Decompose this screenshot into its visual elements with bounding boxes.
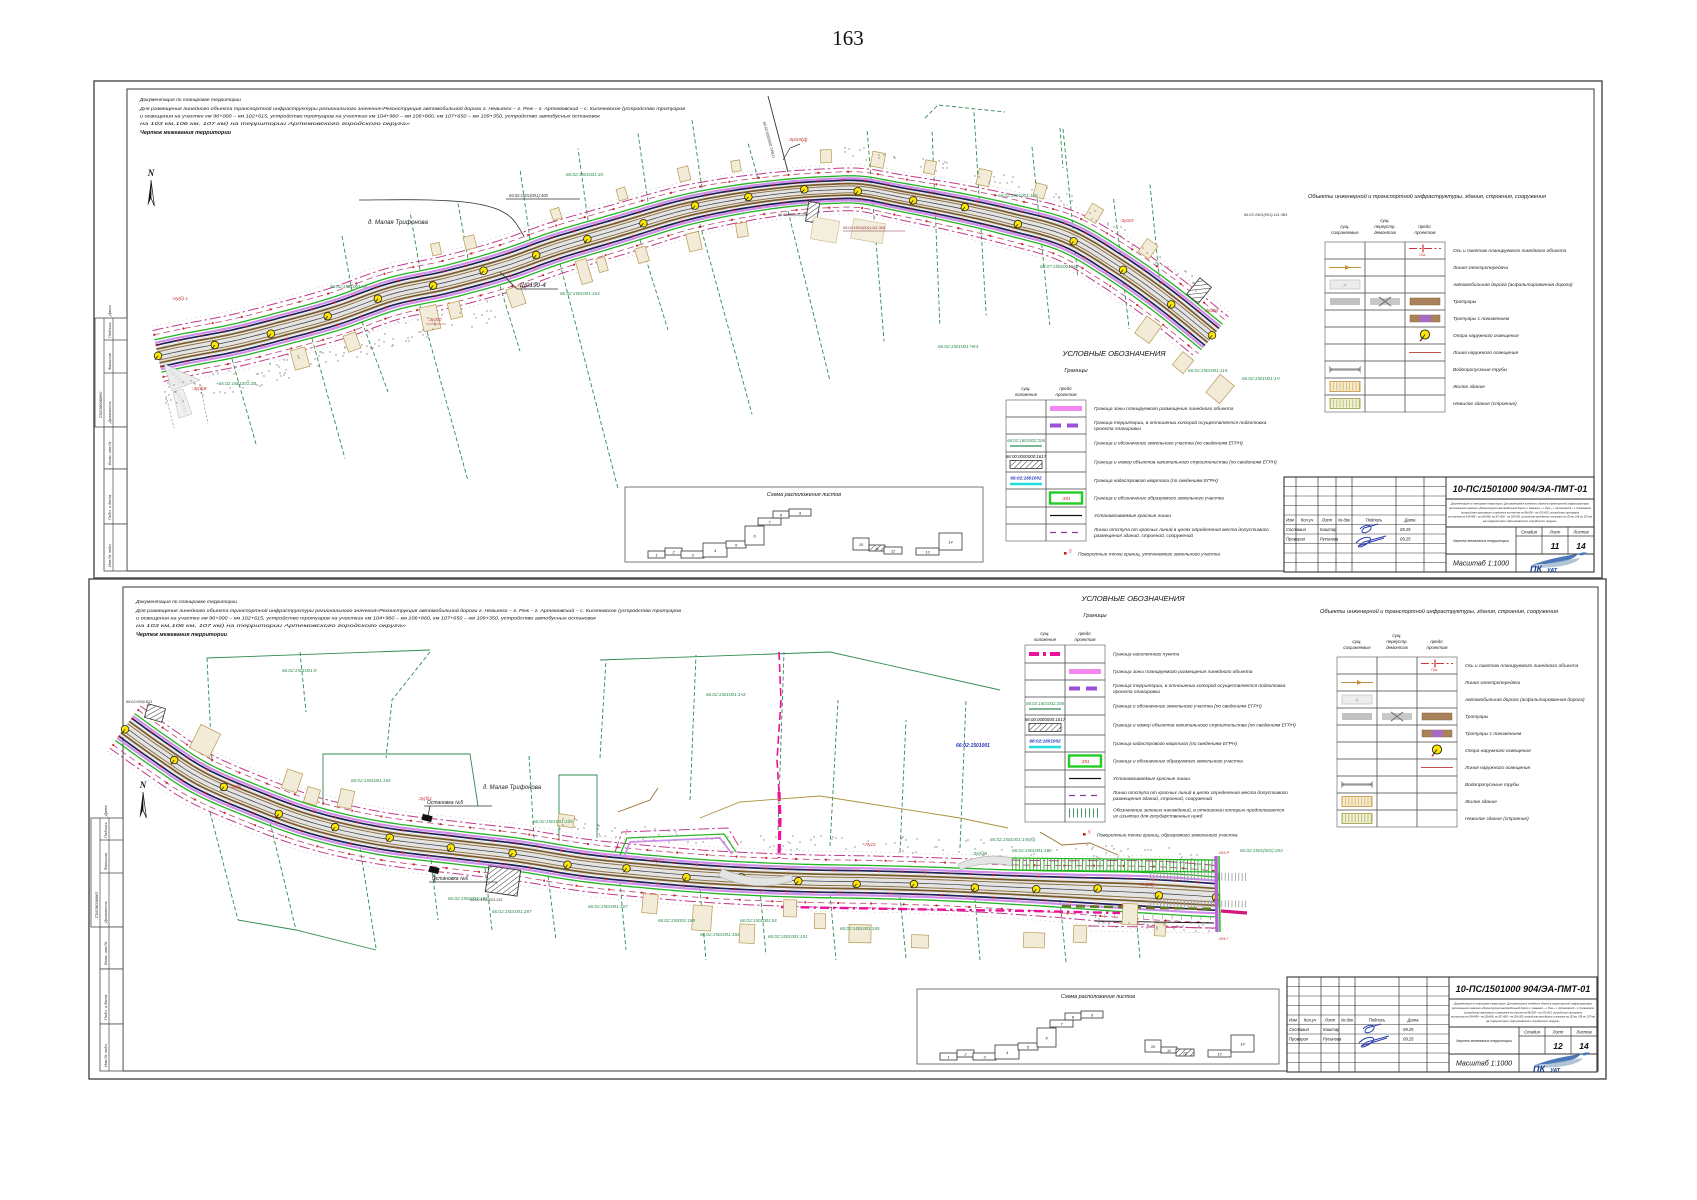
- svg-text:66:02:1501001:1б5: 66:02:1501001:1б5: [533, 819, 573, 824]
- svg-text:Подпись: Подпись: [103, 822, 108, 838]
- svg-text::391: :391: [1081, 759, 1090, 764]
- svg-text:Дата: Дата: [103, 805, 108, 817]
- svg-text:66:02:1501001:9: 66:02:1501001:9: [282, 668, 317, 673]
- svg-text:Линии отступа от красных линий: Линии отступа от красных линий в целях о…: [1112, 789, 1288, 796]
- svg-text::Пу13: :Пу13: [864, 842, 876, 847]
- svg-text:Листов: Листов: [1572, 530, 1589, 535]
- svg-text:12: 12: [1553, 1041, 1563, 1051]
- svg-text:Лист: Лист: [1552, 1030, 1564, 1035]
- svg-text:сущ.: сущ.: [1021, 386, 1030, 391]
- svg-text:их изъятие для государственных: их изъятие для государственных нужд: [1113, 814, 1203, 820]
- svg-text:Тротуары с понижением: Тротуары с понижением: [1465, 731, 1522, 737]
- svg-text:Объекты инженерной и транспорт: Объекты инженерной и транспортной инфрас…: [1320, 608, 1558, 615]
- svg-text::Зу019(Д): :Зу019(Д): [788, 137, 808, 142]
- svg-text:Границы: Границы: [1064, 368, 1088, 374]
- svg-text:Согласовано:: Согласовано:: [94, 891, 99, 918]
- svg-text:11: 11: [1551, 541, 1560, 551]
- svg-text:на 103 км,106 км, 107 км) на т: на 103 км,106 км, 107 км) на территории …: [136, 623, 407, 628]
- svg-text:сущ.: сущ.: [1352, 639, 1361, 644]
- svg-text:Инв.№ подл.: Инв.№ подл.: [103, 1043, 108, 1067]
- svg-text:Линия электропередачи: Линия электропередачи: [1464, 680, 1520, 686]
- svg-text:66:02:0000:В11: 66:02:0000:В11: [126, 700, 153, 704]
- svg-text:положение: положение: [1034, 637, 1057, 642]
- svg-text:Ось и пикетаж планируемого лин: Ось и пикетаж планируемого линейного объ…: [1465, 662, 1579, 669]
- svg-text::Пи(2В): :Пи(2В): [1139, 882, 1155, 887]
- svg-text:предл.: предл.: [1430, 639, 1443, 644]
- svg-text:Остановка №6: Остановка №6: [432, 876, 468, 882]
- svg-text:Тротуары: Тротуары: [1453, 299, 1477, 305]
- svg-text:проекта планировки: проекта планировки: [1094, 427, 1141, 432]
- svg-text:09.25: 09.25: [1403, 1037, 1414, 1042]
- svg-text:Граница и номер объектов капит: Граница и номер объектов капитального ст…: [1113, 723, 1296, 729]
- svg-text:66:02:1501001:151: 66:02:1501001:151: [768, 934, 808, 939]
- svg-text:Нежилое здание (строение): Нежилое здание (строение): [1465, 816, 1529, 822]
- svg-text:66:02:0000001290: 66:02:0000001290: [778, 213, 808, 217]
- svg-text:66:02:1501001:ч3: 66:02:1501001:ч3: [330, 284, 367, 289]
- svg-text:Граница и номер объектов капит: Граница и номер объектов капитального ст…: [1094, 460, 1277, 466]
- svg-text:размещения зданий, строений, с: размещения зданий, строений, сооружений: [1093, 532, 1193, 539]
- svg-text:Фамилия: Фамилия: [107, 352, 112, 370]
- svg-text:Пик: Пик: [1419, 253, 1426, 257]
- svg-text::293.Р: :293.Р: [1218, 851, 1229, 855]
- svg-text:163: 163: [832, 26, 864, 50]
- svg-text:регионального значения «Реконс: регионального значения «Реконструкция ав…: [1451, 1006, 1594, 1010]
- svg-text:сущ.: сущ.: [1340, 224, 1349, 229]
- svg-text:Остановка №5: Остановка №5: [427, 800, 463, 806]
- svg-text::Зу02В: :Зу02В: [1204, 308, 1218, 313]
- svg-text:66:02:1501001:119: 66:02:1501001:119: [1188, 368, 1228, 373]
- svg-text:на участках км 104+980 – км 10: на участках км 104+980 – км 106+860, км …: [1451, 1015, 1595, 1019]
- svg-text:Линия наружного освещения: Линия наружного освещения: [1452, 350, 1519, 356]
- svg-text:Документация по планировке тер: Документация по планировке территории. Д…: [1453, 1002, 1592, 1006]
- svg-text:Для размещения линейного объек: Для размещения линейного объекта транспо…: [135, 607, 682, 613]
- svg-text:Документация по планировке тер: Документация по планировке территории: [135, 599, 237, 605]
- svg-text:Поворотные точки границ, уточн: Поворотные точки границ, уточняемого зем…: [1078, 552, 1220, 558]
- svg-text:Составил: Составил: [1289, 1027, 1310, 1032]
- svg-text:Подп. и дата: Подп. и дата: [103, 994, 108, 1020]
- svg-text:66:02:1501(001):400: 66:02:1501(001):400: [509, 193, 549, 198]
- svg-text:Документация по планировке тер: Документация по планировке территории: [139, 97, 241, 103]
- svg-text:66:02:1501001:184: 66:02:1501001:184: [448, 896, 488, 901]
- svg-text:Подпись: Подпись: [1369, 1018, 1386, 1023]
- svg-text:Схема расположения листов: Схема расположения листов: [767, 492, 841, 498]
- svg-text:66:02:1601002: 66:02:1601002: [1010, 476, 1042, 481]
- svg-text:Лист: Лист: [1321, 518, 1333, 523]
- svg-text:(устройство тротуаров и освеще: (устройство тротуаров и освещения на уча…: [1464, 1010, 1583, 1014]
- svg-text:Изм: Изм: [1286, 518, 1294, 523]
- svg-text:регионального значения «Реконс: регионального значения «Реконструкция ав…: [1448, 506, 1591, 510]
- svg-text:Граница и обозначение земельно: Граница и обозначение земельного участка…: [1094, 441, 1243, 447]
- svg-text:Автомобильная дорога (асфальти: Автомобильная дорога (асфальтированная д…: [1452, 282, 1573, 288]
- svg-text:Устанавливаемые красные линии: Устанавливаемые красные линии: [1094, 513, 1171, 519]
- svg-text:66:02:1501001:1Ч: 66:02:1501001:1Ч: [1242, 376, 1280, 381]
- svg-text::Зу(б)В: :Зу(б)В: [972, 851, 987, 856]
- svg-text:сущ.: сущ.: [1380, 218, 1389, 223]
- svg-text:66:02:1601002:206: 66:02:1601002:206: [1026, 701, 1064, 706]
- svg-text:Граница кадастрового квартала: Граница кадастрового квартала (по сведен…: [1113, 741, 1237, 747]
- svg-text:66:02:1501001:167: 66:02:1501001:167: [588, 904, 628, 909]
- svg-text:Граница и обозначение образуем: Граница и обозначение образуемого земель…: [1094, 496, 1224, 502]
- svg-text:Линия электропередачи: Линия электропередачи: [1452, 265, 1508, 271]
- svg-text:4: 4: [714, 549, 716, 553]
- svg-text:УСЛОВНЫЕ ОБОЗНАЧЕНИЯ: УСЛОВНЫЕ ОБОЗНАЧЕНИЯ: [1061, 349, 1166, 358]
- svg-text:66:07:1501001:ЧЗ: 66:07:1501001:ЧЗ: [1040, 264, 1078, 269]
- svg-text:1: 1: [947, 1055, 949, 1059]
- svg-text::294.Г: :294.Г: [1218, 937, 1229, 941]
- svg-text:14: 14: [1240, 1042, 1244, 1046]
- svg-text:10-ПС/1501000 904/ЭА-ПМТ-01: 10-ПС/1501000 904/ЭА-ПМТ-01: [1453, 484, 1588, 494]
- svg-text:УАТ: УАТ: [1547, 568, 1558, 574]
- svg-text:на территории Артемовского гор: на территории Артемовского городского ок…: [1486, 1019, 1560, 1023]
- svg-text:Границы: Границы: [1083, 613, 1107, 619]
- svg-text:Чертеж межевания территории: Чертеж межевания территории: [1453, 539, 1509, 543]
- svg-text:Схема расположения листов: Схема расположения листов: [1061, 994, 1135, 1000]
- svg-text:А: А: [1354, 698, 1358, 703]
- svg-text:Граница и обозначение земельно: Граница и обозначение земельного участка…: [1113, 704, 1262, 710]
- svg-text:14: 14: [1579, 1041, 1589, 1051]
- svg-text:Проверил: Проверил: [1286, 537, 1306, 542]
- svg-text:66:02:1501001:184: 66:02:1501001:184: [700, 932, 740, 937]
- svg-text:Русинова: Русинова: [1320, 537, 1339, 542]
- svg-text:проекта планировки: проекта планировки: [1113, 690, 1160, 695]
- svg-text:Жилое здание: Жилое здание: [1452, 384, 1485, 390]
- svg-text:66:02:150001:188: 66:02:150001:188: [658, 918, 695, 923]
- svg-text:Лист: Лист: [1549, 530, 1561, 535]
- svg-text:N: N: [139, 780, 147, 790]
- svg-text::Зу200: :Зу200: [428, 317, 442, 322]
- svg-text:Кол.уч: Кол.уч: [1304, 1018, 1317, 1023]
- svg-text:(устройство тротуаров и освеще: (устройство тротуаров и освещения на уча…: [1461, 510, 1580, 514]
- svg-text:1: 1: [655, 553, 657, 557]
- svg-text:09.25: 09.25: [1400, 537, 1411, 542]
- svg-text:Водопропускные трубы: Водопропускные трубы: [1465, 782, 1520, 788]
- svg-text:Граница территории, в отношени: Граница территории, в отношении которой …: [1094, 419, 1267, 426]
- svg-text::Зу(д)В: :Зу(д)В: [192, 386, 206, 391]
- svg-text:Дата: Дата: [1403, 518, 1416, 523]
- svg-text:66:02:1501001:3К: 66:02:1501001:3К: [566, 172, 603, 177]
- svg-text:Чертеж межевания территории: Чертеж межевания территории: [140, 130, 232, 136]
- svg-text:Граница зоны планируемого разм: Граница зоны планируемого размещения лин…: [1094, 405, 1234, 412]
- svg-text:Автомобильная дорога (асфальти: Автомобильная дорога (асфальтированная д…: [1464, 697, 1585, 703]
- svg-text:Каштар: Каштар: [1320, 527, 1337, 532]
- svg-text:66:02:1501001:91: 66:02:1501001:91: [740, 918, 777, 923]
- svg-text:66:02:1501001:163: 66:02:1501001:163: [560, 291, 600, 296]
- svg-text:и освещения на участке км 96+0: и освещения на участке км 96+000 – км 10…: [136, 615, 597, 621]
- svg-text::391: :391: [1062, 496, 1071, 501]
- svg-text:Граница территории, в отношени: Граница территории, в отношении которой …: [1113, 682, 1286, 689]
- svg-text:сохраняемые: сохраняемые: [1343, 645, 1371, 650]
- svg-text:Должность: Должность: [107, 401, 112, 424]
- svg-text:№ док: № док: [1338, 518, 1351, 523]
- svg-text:Кол.уч: Кол.уч: [1301, 518, 1314, 523]
- svg-text:Опора наружного освещения: Опора наружного освещения: [1453, 333, 1519, 339]
- svg-text:Дата: Дата: [1406, 1018, 1419, 1023]
- svg-text:предл.: предл.: [1059, 386, 1072, 391]
- svg-text:и освещения на участке км 96+0: и освещения на участке км 96+000 – км 10…: [140, 113, 601, 119]
- svg-text:Для размещения линейного объек: Для размещения линейного объекта транспо…: [139, 105, 686, 111]
- svg-text:+66:02:1501001:2В: +66:02:1501001:2В: [216, 381, 256, 386]
- svg-text:Согласовано:: Согласовано:: [98, 391, 103, 418]
- svg-text::Ну(б)-1: :Ну(б)-1: [172, 296, 188, 301]
- svg-text:Граница и обозначение образуем: Граница и обозначение образуемого земель…: [1113, 759, 1243, 765]
- svg-text:Листов: Листов: [1575, 1030, 1592, 1035]
- svg-text:Подпись: Подпись: [107, 322, 112, 338]
- svg-text:Составил: Составил: [1286, 527, 1307, 532]
- svg-text:Дата: Дата: [107, 305, 112, 317]
- svg-text:Устанавливаемые красные линии: Устанавливаемые красные линии: [1113, 776, 1190, 782]
- svg-text:положение: положение: [1015, 392, 1038, 397]
- svg-text:5: 5: [1088, 830, 1091, 835]
- svg-text:Чертеж межевания территории: Чертеж межевания территории: [136, 632, 228, 638]
- svg-text:д. Малая Трифонова: д. Малая Трифонова: [368, 219, 428, 226]
- svg-text:66:02:1501001:345: 66:02:1501001:345: [840, 926, 880, 931]
- svg-text:Тротуары: Тротуары: [1465, 714, 1489, 720]
- svg-text:66:02:1601002: 66:02:1601002: [1029, 739, 1061, 744]
- svg-text:14: 14: [948, 540, 952, 544]
- svg-text:Изм: Изм: [1289, 1018, 1297, 1023]
- svg-text::Зу019: :Зу019: [1120, 218, 1134, 223]
- svg-text:проектом: проектом: [1415, 230, 1436, 235]
- svg-text:предл.: предл.: [1078, 631, 1091, 636]
- svg-text:66:02:1601002:206: 66:02:1601002:206: [1007, 438, 1045, 443]
- svg-text:66:02:1501(001):111:3И1: 66:02:1501(001):111:3И1: [843, 226, 886, 230]
- svg-text::Зу(б): :Зу(б): [230, 784, 242, 789]
- svg-text:11: 11: [1167, 1049, 1171, 1053]
- svg-text:Стадия: Стадия: [1524, 1030, 1540, 1035]
- svg-text:66:02:1501(001):111:3В1: 66:02:1501(001):111:3В1: [1244, 212, 1288, 217]
- svg-text:ПК: ПК: [1530, 564, 1543, 574]
- svg-text:Подп. и дата: Подп. и дата: [107, 494, 112, 520]
- svg-text:размещения зданий, строений, с: размещения зданий, строений, сооружений: [1112, 795, 1212, 802]
- svg-text:Водопропускные трубы: Водопропускные трубы: [1453, 367, 1508, 373]
- svg-text:66:02:1501001:ЧК3: 66:02:1501001:ЧК3: [938, 344, 979, 349]
- svg-text:Граница зоны планируемого разм: Граница зоны планируемого размещения лин…: [1113, 668, 1253, 675]
- svg-text:переустр.: переустр.: [1374, 224, 1395, 229]
- svg-text:переустр.: переустр.: [1386, 639, 1407, 644]
- svg-text:66:02:1501001:145(б): 66:02:1501001:145(б): [990, 837, 1036, 842]
- svg-text:Опора наружного освещения: Опора наружного освещения: [1465, 748, 1531, 754]
- svg-text:Чертеж межевания территории: Чертеж межевания территории: [1456, 1039, 1512, 1043]
- svg-text:66:02:1501001:287: 66:02:1501001:287: [492, 909, 532, 914]
- svg-text:УАТ: УАТ: [1550, 1068, 1561, 1074]
- svg-text:Каштар: Каштар: [1323, 1027, 1340, 1032]
- svg-text:Фамилия: Фамилия: [103, 852, 108, 870]
- svg-text:Нежилое здание (строение): Нежилое здание (строение): [1453, 401, 1517, 407]
- svg-text:Обозначение зеленых насаждений: Обозначение зеленых насаждений, в отноше…: [1113, 807, 1285, 814]
- svg-text:Взам. инв.№: Взам. инв.№: [107, 441, 112, 465]
- svg-text:66:02:1501001:126: 66:02:1501001:126: [998, 193, 1038, 198]
- svg-text:предл.: предл.: [1418, 224, 1431, 229]
- svg-text:д. Малая Трифонова: д. Малая Трифонова: [483, 785, 542, 791]
- svg-text:Поворотные точки границ, образ: Поворотные точки границ, образуемого зем…: [1097, 833, 1238, 839]
- svg-text:Взам. инв.№: Взам. инв.№: [103, 941, 108, 965]
- svg-text:Ось и пикетаж планируемого лин: Ось и пикетаж планируемого линейного объ…: [1453, 247, 1567, 254]
- svg-text:4: 4: [1006, 1051, 1008, 1055]
- svg-text:Инв.№ подл.: Инв.№ подл.: [107, 543, 112, 567]
- svg-text:проектом: проектом: [1427, 645, 1448, 650]
- svg-text:Линии отступа от красных линий: Линии отступа от красных линий в целях о…: [1093, 526, 1269, 533]
- svg-text:66:02:1501001:190: 66:02:1501001:190: [1012, 848, 1052, 853]
- svg-text:на территории Артемовского гор: на территории Артемовского городского ок…: [1483, 519, 1557, 523]
- svg-text:Стадия: Стадия: [1521, 530, 1537, 535]
- svg-text:66:02:1501(001):203: 66:02:1501(001):203: [1240, 848, 1283, 853]
- svg-text:сущ.: сущ.: [1040, 631, 1049, 636]
- svg-text:сущ.: сущ.: [1392, 633, 1401, 638]
- svg-text:Русинова: Русинова: [1323, 1037, 1342, 1042]
- svg-text:Щ0190-4: Щ0190-4: [520, 282, 546, 289]
- svg-text:УСЛОВНЫЕ ОБОЗНАЧЕНИЯ: УСЛОВНЫЕ ОБОЗНАЧЕНИЯ: [1080, 594, 1185, 603]
- svg-text:Граница кадастрового квартала: Граница кадастрового квартала (по сведен…: [1094, 478, 1218, 484]
- svg-text:09.25: 09.25: [1403, 1027, 1414, 1032]
- svg-text:11: 11: [875, 547, 879, 551]
- svg-text:демонтаж: демонтаж: [1374, 230, 1397, 235]
- svg-text:66:00:0000000:1617: 66:00:0000000:1617: [1025, 717, 1066, 722]
- svg-text:66:02:1501001:165: 66:02:1501001:165: [351, 778, 391, 783]
- svg-text:ПК: ПК: [1533, 1064, 1546, 1074]
- svg-text:на 103 км,106 км, 107 км) на т: на 103 км,106 км, 107 км) на территории …: [140, 121, 411, 126]
- svg-text:Масштаб 1:1000: Масштаб 1:1000: [1453, 560, 1509, 568]
- svg-text:66:02:1501001: 66:02:1501001: [956, 743, 990, 749]
- svg-text:Граница населенного пункта: Граница населенного пункта: [1113, 652, 1180, 658]
- svg-text:Документация по планировке тер: Документация по планировке территории. Д…: [1450, 502, 1589, 506]
- svg-text:Должность: Должность: [103, 901, 108, 924]
- svg-text:Объекты инженерной и транспорт: Объекты инженерной и транспортной инфрас…: [1308, 193, 1546, 200]
- svg-text:Пик: Пик: [1431, 668, 1438, 672]
- svg-text:Лист: Лист: [1324, 1018, 1336, 1023]
- svg-text:Жилое здание: Жилое здание: [1464, 799, 1497, 805]
- svg-text:Тротуары с понижением: Тротуары с понижением: [1453, 316, 1510, 322]
- svg-text:Подпись: Подпись: [1366, 518, 1383, 523]
- svg-text:14: 14: [1576, 541, 1586, 551]
- svg-text:А: А: [1342, 283, 1346, 288]
- svg-text:Масштаб 1:1000: Масштаб 1:1000: [1456, 1060, 1512, 1068]
- svg-text:09.25: 09.25: [1400, 527, 1411, 532]
- svg-text:демонтаж: демонтаж: [1386, 645, 1409, 650]
- svg-text:66:00:0000000:1617: 66:00:0000000:1617: [1006, 454, 1047, 459]
- svg-text:проектом: проектом: [1075, 637, 1096, 642]
- svg-text:Линия наружного освещения: Линия наружного освещения: [1464, 765, 1531, 771]
- svg-text:№ док: № док: [1341, 1018, 1354, 1023]
- svg-text:на участках км 104+980 – км 10: на участках км 104+980 – км 106+860, км …: [1448, 515, 1592, 519]
- svg-text:проектом: проектом: [1056, 392, 1077, 397]
- svg-text:10-ПС/1501000 904/ЭА-ПМТ-01: 10-ПС/1501000 904/ЭА-ПМТ-01: [1456, 984, 1591, 994]
- svg-text:Проверил: Проверил: [1289, 1037, 1309, 1042]
- svg-text:N: N: [147, 168, 155, 178]
- svg-text:сохраняемые: сохраняемые: [1331, 230, 1359, 235]
- svg-text:5: 5: [1069, 549, 1072, 554]
- svg-text:66:02:1501001:1ч3: 66:02:1501001:1ч3: [706, 692, 746, 697]
- svg-text::Пу13: :Пу13: [652, 858, 664, 863]
